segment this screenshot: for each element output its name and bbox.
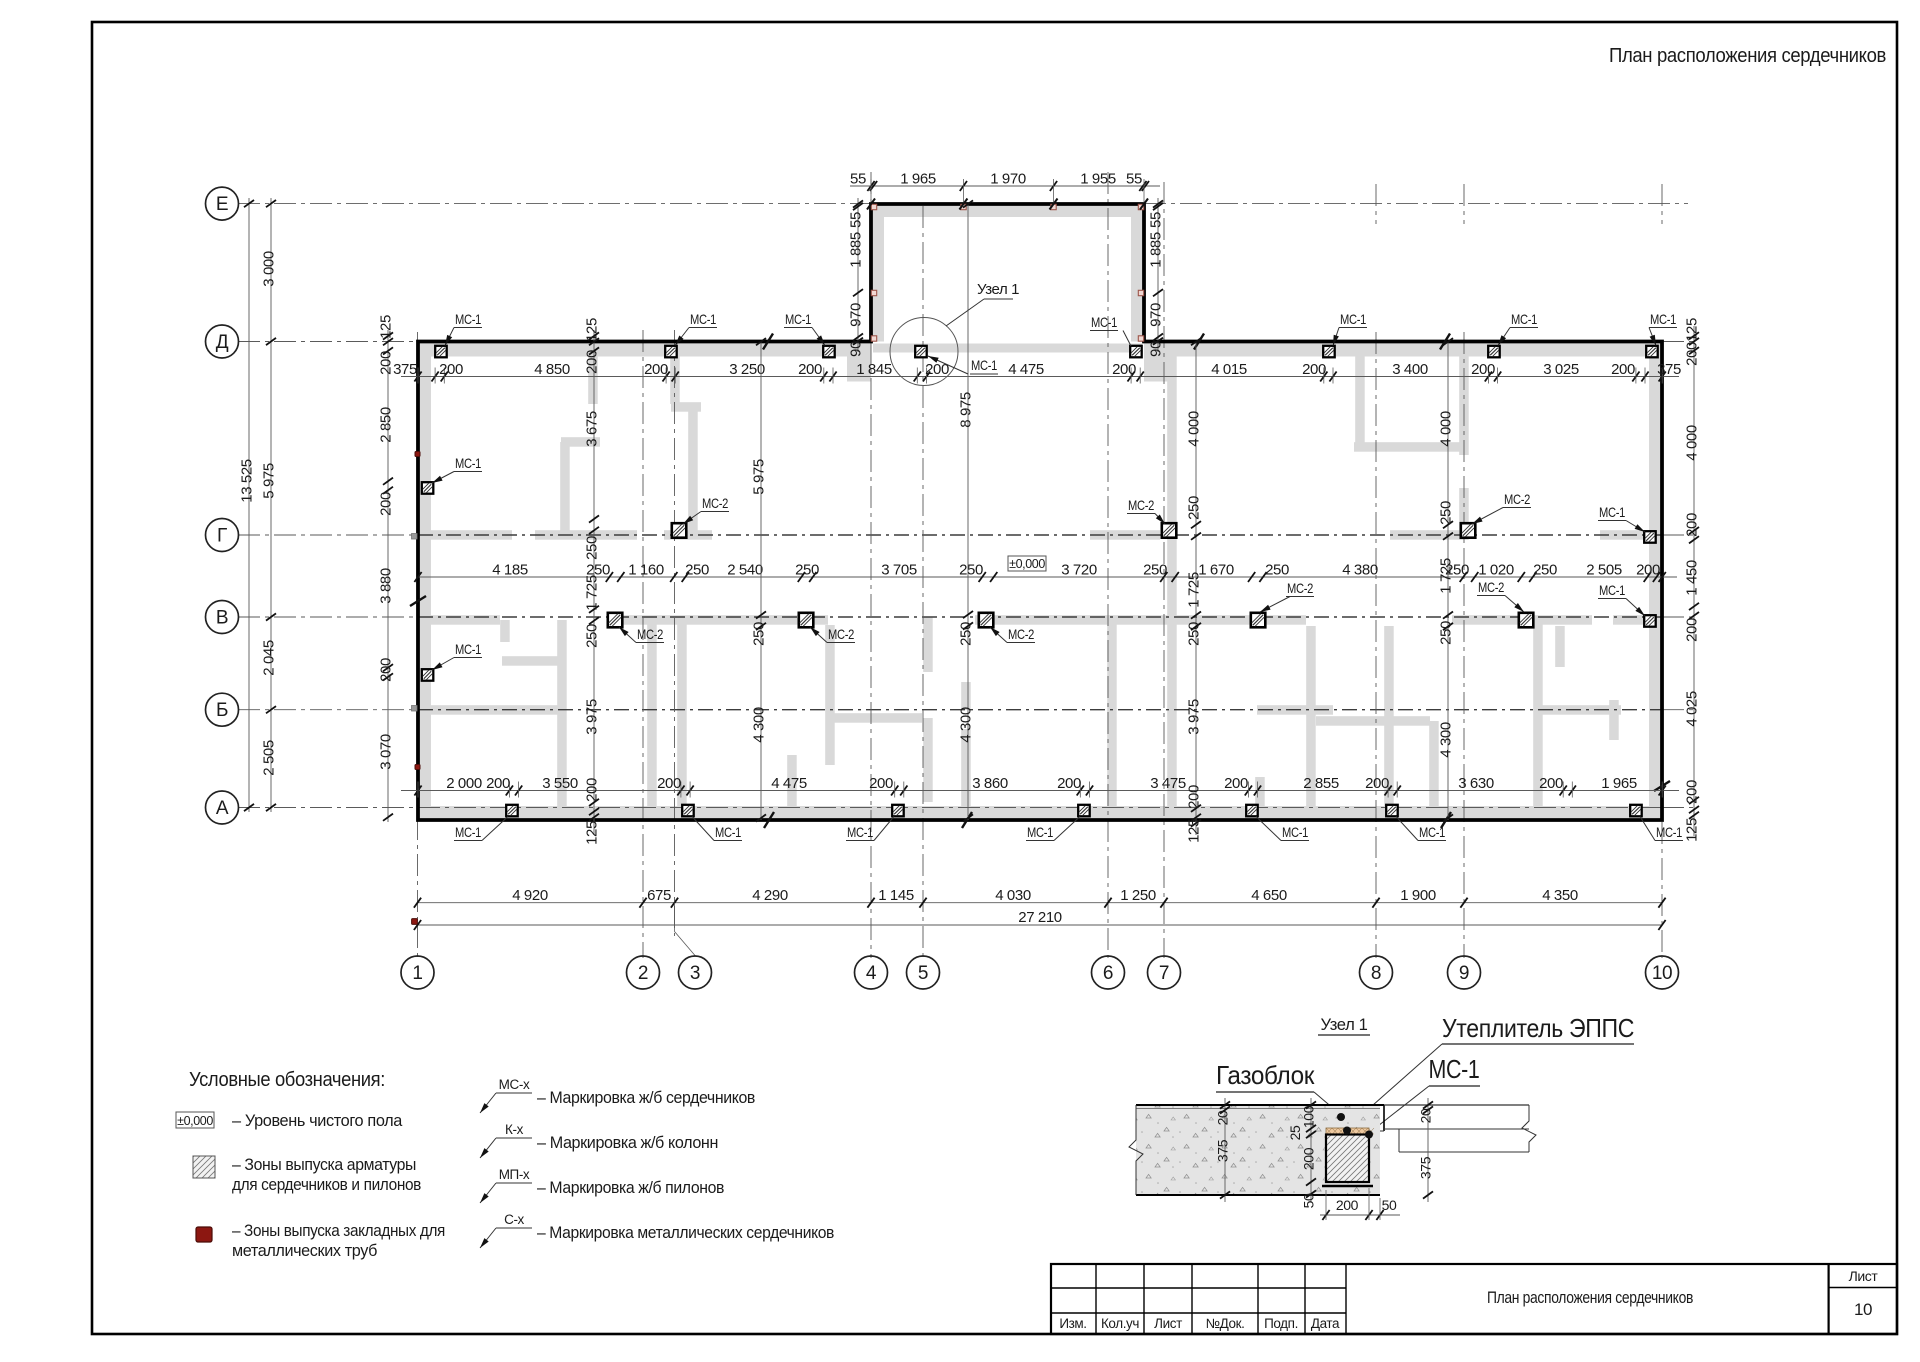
svg-text:3 705: 3 705 [881, 562, 917, 579]
svg-text:200: 200 [1684, 342, 1701, 366]
svg-text:200: 200 [378, 351, 395, 375]
svg-text:375: 375 [1215, 1139, 1231, 1162]
svg-text:250: 250 [1186, 496, 1203, 520]
svg-text:МС-2: МС-2 [702, 495, 728, 511]
svg-text:1 725: 1 725 [1438, 558, 1455, 594]
svg-text:375: 375 [393, 361, 417, 378]
svg-text:200: 200 [1301, 1147, 1317, 1170]
svg-text:375: 375 [1657, 361, 1681, 378]
svg-text:2 000: 2 000 [446, 775, 482, 792]
svg-text:С-х: С-х [504, 1212, 524, 1227]
svg-text:250: 250 [584, 624, 601, 648]
svg-text:– Маркировка металлических сер: – Маркировка металлических сердечников [537, 1224, 835, 1242]
svg-text:металлических труб: металлических труб [232, 1241, 378, 1260]
svg-text:4 290: 4 290 [752, 887, 788, 904]
svg-text:МС-1: МС-1 [1027, 824, 1053, 840]
svg-text:200: 200 [1057, 775, 1081, 792]
svg-text:1 725: 1 725 [584, 575, 601, 611]
svg-text:250: 250 [1438, 501, 1455, 525]
svg-text:4 300: 4 300 [958, 707, 975, 743]
svg-text:МС-2: МС-2 [1008, 626, 1034, 642]
svg-text:3 975: 3 975 [1186, 699, 1203, 735]
svg-text:200: 200 [1112, 361, 1136, 378]
svg-text:Условные обозначения:: Условные обозначения: [189, 1069, 385, 1091]
svg-text:50: 50 [1382, 1197, 1397, 1213]
svg-text:125: 125 [584, 821, 601, 845]
svg-text:200: 200 [1186, 785, 1203, 809]
svg-text:970: 970 [848, 303, 865, 327]
svg-text:1 965: 1 965 [900, 171, 936, 188]
svg-text:МС-1: МС-1 [455, 311, 481, 327]
svg-text:МП-х: МП-х [499, 1167, 530, 1182]
svg-text:200: 200 [1365, 775, 1389, 792]
svg-text:План расположения сердечников: План расположения сердечников [1609, 45, 1886, 67]
svg-text:200: 200 [439, 361, 463, 378]
svg-text:250: 250 [1533, 562, 1557, 579]
svg-text:200: 200 [1684, 513, 1701, 537]
svg-text:2 540: 2 540 [727, 562, 763, 579]
svg-text:3 250: 3 250 [729, 361, 765, 378]
svg-text:МС-1: МС-1 [1650, 311, 1676, 327]
svg-text:200: 200 [1684, 618, 1701, 642]
svg-text:200: 200 [486, 775, 510, 792]
svg-text:3 880: 3 880 [378, 568, 395, 604]
svg-text:МС-1: МС-1 [1599, 504, 1625, 520]
svg-text:200: 200 [1611, 361, 1635, 378]
svg-text:250: 250 [1438, 621, 1455, 645]
svg-text:100: 100 [1301, 1105, 1317, 1128]
svg-text:250: 250 [751, 622, 768, 646]
svg-text:МС-2: МС-2 [1478, 579, 1504, 595]
svg-text:5: 5 [918, 963, 928, 984]
svg-text:200: 200 [1224, 775, 1248, 792]
svg-text:200: 200 [1684, 780, 1701, 804]
svg-text:– Зоны выпуска закладных для: – Зоны выпуска закладных для [232, 1221, 445, 1240]
svg-text:27 210: 27 210 [1018, 909, 1062, 926]
svg-text:6: 6 [1103, 963, 1113, 984]
svg-text:250: 250 [959, 562, 983, 579]
svg-text:МС-2: МС-2 [828, 626, 854, 642]
svg-text:4 850: 4 850 [534, 361, 570, 378]
svg-text:250: 250 [685, 562, 709, 579]
svg-text:55: 55 [848, 212, 865, 228]
svg-text:200: 200 [378, 492, 395, 516]
svg-text:Подп.: Подп. [1264, 1316, 1298, 1331]
svg-text:Г: Г [217, 526, 227, 547]
svg-text:1 160: 1 160 [628, 562, 664, 579]
svg-text:3 475: 3 475 [1150, 775, 1186, 792]
svg-text:10: 10 [1652, 963, 1672, 984]
svg-text:200: 200 [378, 658, 395, 682]
svg-text:МС-х: МС-х [499, 1077, 530, 1092]
svg-text:250: 250 [1143, 562, 1167, 579]
svg-text:Б: Б [216, 700, 228, 721]
svg-text:2 505: 2 505 [261, 740, 278, 776]
svg-text:МС-2: МС-2 [637, 626, 663, 642]
svg-text:Узел 1: Узел 1 [977, 281, 1019, 298]
svg-text:3 860: 3 860 [972, 775, 1008, 792]
svg-text:1 845: 1 845 [856, 361, 892, 378]
svg-text:±0,000: ±0,000 [1009, 557, 1045, 571]
svg-text:90: 90 [848, 341, 865, 357]
svg-text:– Уровень чистого пола: – Уровень чистого пола [232, 1111, 403, 1130]
svg-text:200: 200 [584, 778, 601, 802]
svg-text:3 630: 3 630 [1458, 775, 1494, 792]
svg-text:3 000: 3 000 [261, 251, 278, 287]
svg-text:5 975: 5 975 [261, 463, 278, 499]
svg-text:4 000: 4 000 [1438, 411, 1455, 447]
svg-text:– Маркировка ж/б пилонов: – Маркировка ж/б пилонов [537, 1179, 725, 1197]
svg-text:55: 55 [1148, 212, 1165, 228]
svg-text:200: 200 [1636, 562, 1660, 579]
svg-text:2 855: 2 855 [1303, 775, 1339, 792]
svg-text:МС-1: МС-1 [971, 357, 997, 373]
svg-text:1 970: 1 970 [990, 171, 1026, 188]
svg-text:250: 250 [1186, 622, 1203, 646]
svg-text:200: 200 [584, 350, 601, 374]
svg-text:Д: Д [216, 332, 229, 353]
svg-text:– Зоны выпуска арматуры: – Зоны выпуска арматуры [232, 1155, 416, 1174]
svg-text:1 670: 1 670 [1198, 562, 1234, 579]
svg-text:Лист: Лист [1154, 1316, 1182, 1331]
svg-text:4 475: 4 475 [1008, 361, 1044, 378]
svg-text:Утеплитель ЭППС: Утеплитель ЭППС [1442, 1013, 1634, 1043]
svg-text:90: 90 [1148, 341, 1165, 357]
svg-text:20: 20 [1215, 1110, 1231, 1125]
svg-text:200: 200 [798, 361, 822, 378]
svg-text:3: 3 [690, 963, 700, 984]
svg-text:970: 970 [1148, 303, 1165, 327]
svg-text:1 020: 1 020 [1478, 562, 1514, 579]
svg-text:– Маркировка ж/б сердечников: – Маркировка ж/б сердечников [537, 1089, 756, 1107]
svg-text:МС-1: МС-1 [455, 455, 481, 471]
svg-text:125: 125 [1684, 818, 1701, 842]
svg-text:4 000: 4 000 [1186, 411, 1203, 447]
svg-text:1 725: 1 725 [1186, 572, 1203, 608]
svg-text:МС-1: МС-1 [455, 641, 481, 657]
svg-text:МС-1: МС-1 [1282, 824, 1308, 840]
svg-text:4 920: 4 920 [512, 887, 548, 904]
svg-text:200: 200 [1539, 775, 1563, 792]
svg-text:4 025: 4 025 [1684, 691, 1701, 727]
svg-text:200: 200 [1302, 361, 1326, 378]
svg-text:4 185: 4 185 [492, 562, 528, 579]
svg-text:55: 55 [1126, 171, 1142, 188]
svg-text:250: 250 [1265, 562, 1289, 579]
svg-text:Дата: Дата [1311, 1316, 1340, 1331]
svg-text:4 030: 4 030 [995, 887, 1031, 904]
svg-text:4 475: 4 475 [771, 775, 807, 792]
svg-text:2: 2 [638, 963, 648, 984]
svg-text:200: 200 [1471, 361, 1495, 378]
svg-text:20: 20 [1418, 1108, 1434, 1123]
svg-text:МС-2: МС-2 [1128, 497, 1154, 513]
svg-text:для сердечников и пилонов: для сердечников и пилонов [232, 1175, 421, 1194]
svg-text:МС-1: МС-1 [785, 311, 811, 327]
svg-text:Узел 1: Узел 1 [1321, 1015, 1368, 1034]
svg-text:250: 250 [584, 536, 601, 560]
svg-text:375: 375 [1418, 1156, 1434, 1179]
svg-text:3 675: 3 675 [584, 411, 601, 447]
svg-text:125: 125 [1684, 318, 1701, 342]
svg-text:План расположения сердечников: План расположения сердечников [1487, 1289, 1694, 1307]
svg-text:3 400: 3 400 [1392, 361, 1428, 378]
svg-text:В: В [216, 608, 228, 629]
svg-text:МС-1: МС-1 [1091, 314, 1117, 330]
svg-text:МС-1: МС-1 [1429, 1054, 1480, 1084]
svg-text:МС-1: МС-1 [455, 824, 481, 840]
svg-text:МС-1: МС-1 [847, 824, 873, 840]
svg-text:200: 200 [657, 775, 681, 792]
svg-text:№Док.: №Док. [1206, 1316, 1245, 1331]
svg-text:МС-1: МС-1 [1511, 311, 1537, 327]
svg-text:Изм.: Изм. [1059, 1316, 1086, 1331]
svg-text:МС-1: МС-1 [1656, 824, 1682, 840]
svg-text:4 350: 4 350 [1542, 887, 1578, 904]
svg-text:2 850: 2 850 [378, 407, 395, 443]
svg-text:1 250: 1 250 [1120, 887, 1156, 904]
svg-text:2 505: 2 505 [1586, 562, 1622, 579]
svg-text:Е: Е [216, 194, 228, 215]
svg-text:10: 10 [1854, 1300, 1872, 1319]
svg-text:125: 125 [584, 318, 601, 342]
svg-text:2 045: 2 045 [261, 640, 278, 676]
svg-text:4 300: 4 300 [751, 707, 768, 743]
svg-text:200: 200 [869, 775, 893, 792]
svg-text:Газоблок: Газоблок [1216, 1060, 1315, 1090]
svg-text:1 885: 1 885 [1148, 232, 1165, 268]
svg-text:125: 125 [1186, 819, 1203, 843]
svg-text:1 955: 1 955 [1080, 171, 1116, 188]
svg-text:МС-1: МС-1 [1419, 824, 1445, 840]
svg-text:3 550: 3 550 [542, 775, 578, 792]
svg-text:К-х: К-х [505, 1122, 524, 1137]
svg-text:Лист: Лист [1849, 1268, 1879, 1284]
svg-text:Кол.уч: Кол.уч [1101, 1316, 1139, 1331]
svg-text:МС-1: МС-1 [1340, 311, 1366, 327]
svg-text:МС-1: МС-1 [1599, 582, 1625, 598]
svg-text:200: 200 [644, 361, 668, 378]
svg-text:– Маркировка ж/б колонн: – Маркировка ж/б колонн [537, 1134, 718, 1152]
svg-text:4 650: 4 650 [1251, 887, 1287, 904]
svg-text:4 000: 4 000 [1684, 425, 1701, 461]
svg-text:250: 250 [795, 562, 819, 579]
svg-text:3 070: 3 070 [378, 734, 395, 770]
svg-text:7: 7 [1159, 963, 1169, 984]
svg-text:9: 9 [1459, 963, 1469, 984]
svg-text:4 380: 4 380 [1342, 562, 1378, 579]
svg-text:3 720: 3 720 [1061, 562, 1097, 579]
svg-text:4 015: 4 015 [1211, 361, 1247, 378]
svg-text:1 965: 1 965 [1601, 775, 1637, 792]
svg-text:4 300: 4 300 [1438, 722, 1455, 758]
svg-text:1 900: 1 900 [1400, 887, 1436, 904]
svg-text:25: 25 [1287, 1125, 1303, 1140]
svg-text:1 145: 1 145 [878, 887, 914, 904]
svg-text:675: 675 [647, 887, 671, 904]
svg-text:МС-2: МС-2 [1504, 491, 1530, 507]
svg-text:125: 125 [378, 315, 395, 339]
svg-text:А: А [216, 798, 229, 819]
svg-text:1 450: 1 450 [1684, 560, 1701, 596]
svg-text:50: 50 [1301, 1193, 1317, 1208]
svg-text:1: 1 [412, 963, 422, 984]
svg-text:5 975: 5 975 [751, 459, 768, 495]
svg-text:±0,000: ±0,000 [177, 1114, 213, 1128]
svg-text:3 025: 3 025 [1543, 361, 1579, 378]
svg-text:200: 200 [1336, 1197, 1359, 1213]
svg-text:55: 55 [850, 171, 866, 188]
svg-text:МС-2: МС-2 [1287, 580, 1313, 596]
svg-text:1 885: 1 885 [848, 232, 865, 268]
svg-text:13 525: 13 525 [239, 459, 256, 503]
svg-text:8 975: 8 975 [958, 392, 975, 428]
svg-text:8: 8 [1371, 963, 1381, 984]
svg-text:3 975: 3 975 [584, 699, 601, 735]
svg-text:4: 4 [866, 963, 877, 984]
svg-text:МС-1: МС-1 [690, 311, 716, 327]
svg-text:МС-1: МС-1 [715, 824, 741, 840]
svg-text:250: 250 [958, 622, 975, 646]
